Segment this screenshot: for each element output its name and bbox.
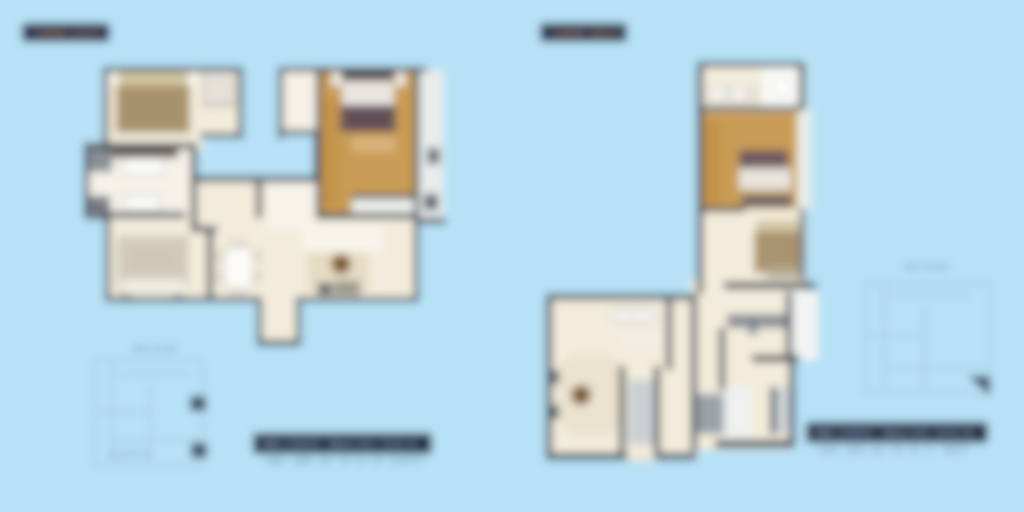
- svg-text:3 BHK: 3 BHK: [553, 28, 585, 40]
- svg-text:SBA: SBA: [262, 439, 280, 449]
- svg-text:KEY PLAN: KEY PLAN: [905, 262, 949, 272]
- svg-text:56: 56: [893, 445, 903, 455]
- svg-text:EAST: EAST: [72, 28, 101, 40]
- svg-text:42: 42: [356, 456, 366, 466]
- svg-text:1085: 1085: [292, 456, 312, 466]
- svg-text:17: 17: [925, 445, 935, 455]
- svg-text:WEST: WEST: [590, 28, 621, 40]
- svg-text:UDS: UDS: [910, 428, 929, 438]
- svg-text:E: E: [410, 439, 416, 449]
- svg-text:N O R T H: N O R T H: [110, 450, 152, 460]
- svg-text:KEY PLAN: KEY PLAN: [133, 344, 177, 354]
- svg-text:CARPET: CARPET: [285, 439, 322, 449]
- svg-text:W: W: [964, 428, 973, 438]
- svg-text:T3: T3: [412, 456, 423, 466]
- svg-text:BALC: BALC: [884, 428, 908, 438]
- svg-text:18: 18: [372, 456, 382, 466]
- svg-text:CARPET: CARPET: [838, 428, 875, 438]
- svg-text:WEST: WEST: [943, 445, 970, 455]
- svg-text:1060: 1060: [845, 445, 865, 455]
- svg-text:3 BHK: 3 BHK: [35, 28, 67, 40]
- svg-text:1640: 1640: [818, 445, 838, 455]
- svg-text:EAST: EAST: [390, 456, 414, 466]
- svg-text:58: 58: [340, 456, 350, 466]
- svg-text:BALC: BALC: [330, 439, 354, 449]
- svg-text:FACE: FACE: [382, 439, 406, 449]
- svg-text:SBA: SBA: [815, 428, 833, 438]
- svg-text:UDS: UDS: [356, 439, 375, 449]
- svg-text:1665: 1665: [265, 456, 285, 466]
- svg-text:120: 120: [318, 456, 333, 466]
- svg-text:40: 40: [909, 445, 919, 455]
- svg-text:115: 115: [871, 445, 885, 455]
- svg-text:FACE: FACE: [936, 428, 960, 438]
